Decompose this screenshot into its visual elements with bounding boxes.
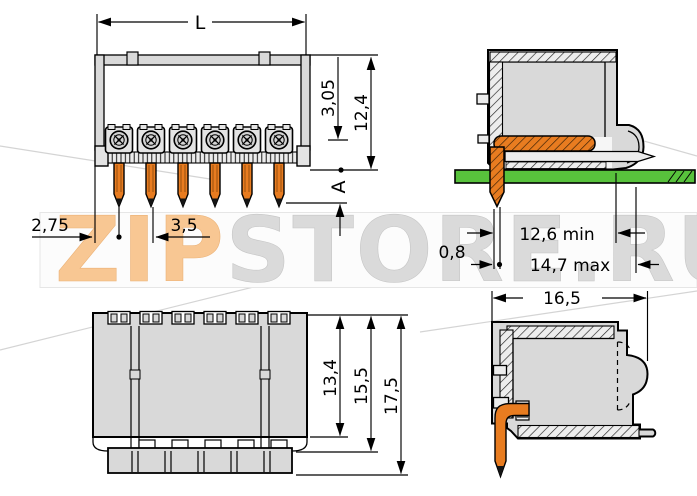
dim-label-3-05: 3,05 (319, 79, 339, 117)
dim-label-12-6-min: 12,6 min (519, 225, 594, 245)
dim-label-3-5: 3,5 (170, 216, 197, 236)
dim-label-15-5: 15,5 (352, 367, 372, 405)
dim-label-14-7-max: 14,7 max (530, 256, 610, 276)
dim-label-0-8: 0,8 (438, 243, 465, 263)
dim-label-a: A (328, 181, 350, 194)
top-view-body (93, 313, 307, 437)
connector-dimensional-drawing: ZIPSTORE.RU (0, 0, 697, 496)
dim-label-12-4: 12,4 (352, 94, 372, 132)
dim-label-2-75: 2,75 (31, 216, 69, 236)
watermark-text-orange: ZIP (55, 198, 226, 303)
dim-label-17-5: 17,5 (382, 377, 402, 415)
dim-label-overall-width: L (195, 12, 206, 34)
pcb-view-top-wall-hatch (490, 52, 616, 62)
dim-label-13-4: 13,4 (321, 359, 341, 397)
side-view-top-wall-hatch (507, 326, 614, 339)
watermark: ZIPSTORE.RU (40, 198, 697, 303)
technical-drawing-page: ZIPSTORE.RU (0, 0, 697, 496)
dim-label-16-5: 16,5 (543, 289, 581, 309)
pcb-view-metal-contact (505, 152, 654, 162)
top-view-bottom-block (108, 448, 292, 473)
side-view-bottom-wall-hatch (518, 426, 639, 438)
watermark-text: ZIPSTORE.RU (55, 198, 697, 303)
